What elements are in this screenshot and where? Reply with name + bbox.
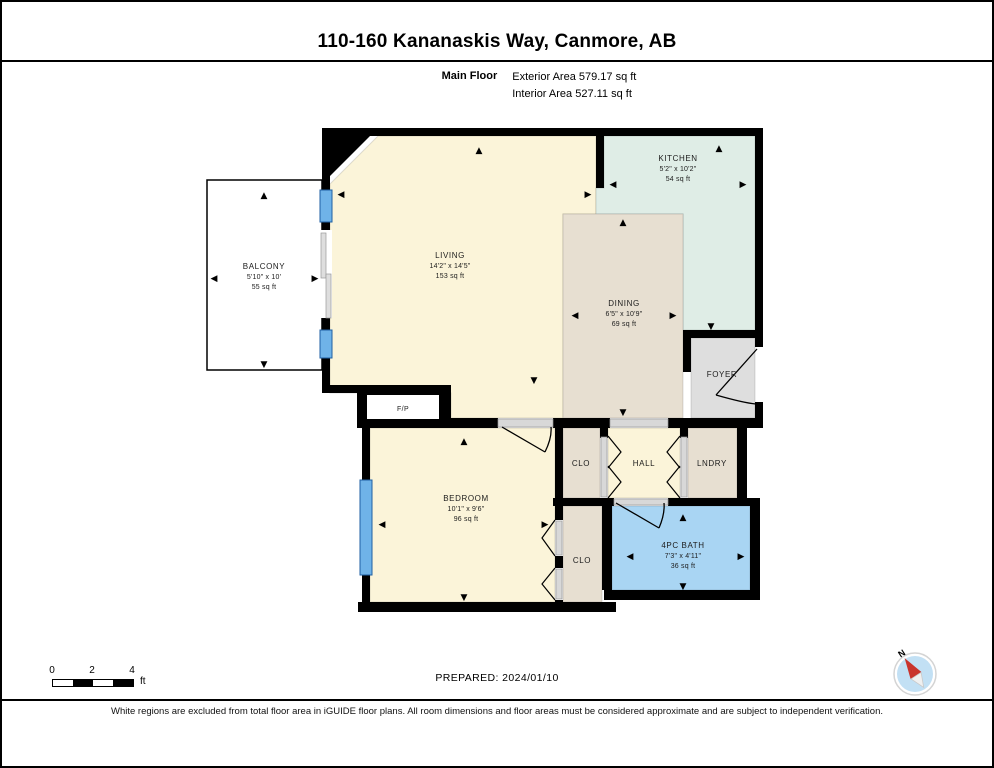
balcony-area: 55 sq ft <box>252 284 277 291</box>
living-arrow-up-icon: ▲ <box>476 146 483 156</box>
laundry-label: LNDRY <box>697 459 727 468</box>
living-label: LIVING <box>435 251 465 260</box>
bedroom-arrow-up-icon: ▲ <box>461 437 468 447</box>
floor-plan: BALCONY 5'10" x 10' 55 sq ft LIVING 14'2… <box>0 0 994 768</box>
bedroom-arrow-right-icon: ▶ <box>542 520 549 530</box>
bath-arrow-right-icon: ▶ <box>738 552 745 562</box>
bedroom-arrow-left-icon: ◀ <box>379 520 386 530</box>
bath-area: 36 sq ft <box>671 563 696 570</box>
balcony-label: BALCONY <box>243 262 285 271</box>
kitchen-arrow-up-icon: ▲ <box>716 144 723 154</box>
kitchen-arrow-down-icon: ▼ <box>708 322 715 332</box>
bedroom-window <box>360 480 372 575</box>
balcony-arrow-down-icon: ▼ <box>261 360 268 370</box>
closet-bedroom-floor <box>563 506 602 602</box>
balcony-arrow-up-icon: ▲ <box>261 191 268 201</box>
disclaimer-text: White regions are excluded from total fl… <box>0 706 994 717</box>
dining-arrow-left-icon: ◀ <box>572 311 579 321</box>
bedroom-floor <box>370 428 555 602</box>
kitchen-arrow-left-icon: ◀ <box>610 180 617 190</box>
bedroom-area: 96 sq ft <box>454 516 479 523</box>
hall-label: HALL <box>633 459 655 468</box>
bedroom-label: BEDROOM <box>443 494 489 503</box>
balcony-dims: 5'10" x 10' <box>247 274 281 281</box>
living-area: 153 sq ft <box>436 273 465 280</box>
floor-regions <box>330 136 755 602</box>
living-window-top <box>320 190 332 222</box>
dining-dims: 6'5" x 10'9" <box>606 311 643 318</box>
dining-area: 69 sq ft <box>612 321 637 328</box>
bath-label: 4PC BATH <box>661 541 704 550</box>
kitchen-arrow-right-icon: ▶ <box>740 180 747 190</box>
closet-hall-label: CLO <box>572 459 590 468</box>
balcony-arrow-right-icon: ▶ <box>312 274 319 284</box>
living-window-bottom <box>320 330 332 358</box>
balcony-arrow-left-icon: ◀ <box>211 274 218 284</box>
sliding-door <box>320 230 332 318</box>
dining-arrow-up-icon: ▲ <box>620 218 627 228</box>
kitchen-dims: 5'2" x 10'2" <box>660 166 697 173</box>
living-dims: 14'2" x 14'5" <box>430 263 471 270</box>
footer-divider <box>0 699 994 701</box>
living-arrow-right-icon: ▶ <box>585 190 592 200</box>
foyer-label: FOYER <box>707 370 738 379</box>
bath-dims: 7'3" x 4'11" <box>665 553 702 560</box>
fireplace-label: F/P <box>397 406 409 413</box>
dining-arrow-right-icon: ▶ <box>670 311 677 321</box>
bath-arrow-left-icon: ◀ <box>627 552 634 562</box>
kitchen-area: 54 sq ft <box>666 176 691 183</box>
closet-bedroom-label: CLO <box>573 556 591 565</box>
prepared-date: PREPARED: 2024/01/10 <box>0 672 994 684</box>
bedroom-arrow-down-icon: ▼ <box>461 593 468 603</box>
dining-label: DINING <box>608 299 640 308</box>
bath-arrow-up-icon: ▲ <box>680 513 687 523</box>
living-arrow-down-icon: ▼ <box>531 376 538 386</box>
dining-arrow-down-icon: ▼ <box>620 408 627 418</box>
compass: N <box>887 646 943 702</box>
bedroom-dims: 10'1" x 9'6" <box>448 506 485 513</box>
living-arrow-left-icon: ◀ <box>338 190 345 200</box>
bath-arrow-down-icon: ▼ <box>680 582 687 592</box>
floorplan-page: 110-160 Kananaskis Way, Canmore, AB Main… <box>0 0 994 768</box>
kitchen-label: KITCHEN <box>658 154 697 163</box>
